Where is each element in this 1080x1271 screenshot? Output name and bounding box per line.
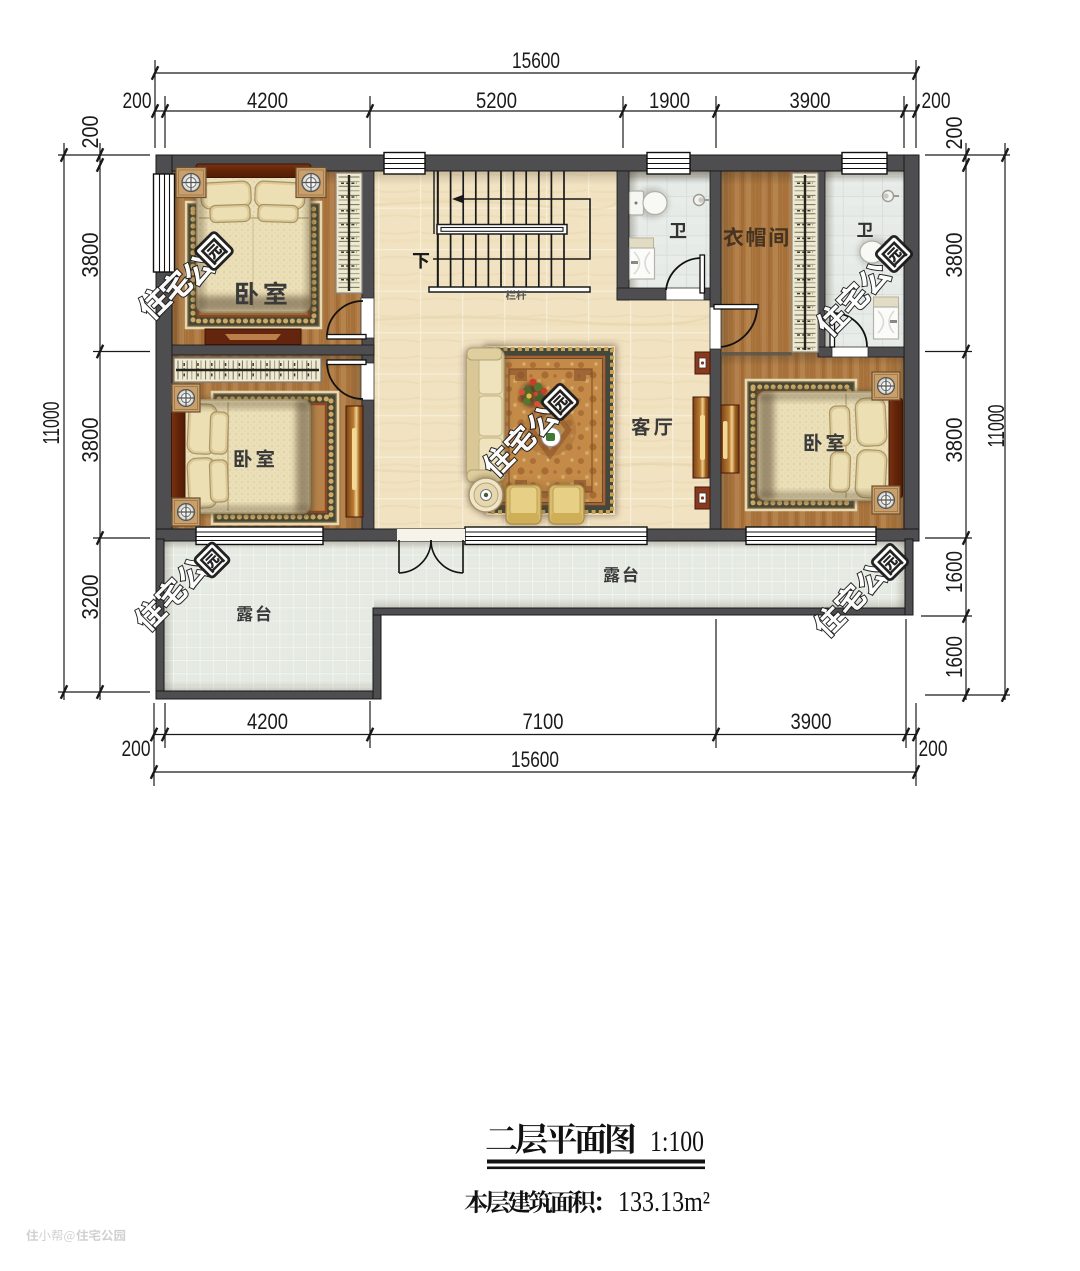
svg-text:3900: 3900: [791, 709, 832, 734]
svg-text:11000: 11000: [38, 402, 64, 445]
svg-text:200: 200: [123, 88, 152, 113]
svg-text:15600: 15600: [512, 48, 560, 73]
svg-text:200: 200: [919, 736, 948, 761]
svg-text:3800: 3800: [77, 418, 103, 463]
svg-text:11000: 11000: [983, 405, 1009, 448]
svg-text:1600: 1600: [941, 551, 967, 593]
svg-text:200: 200: [77, 116, 103, 149]
svg-text:3800: 3800: [941, 418, 967, 463]
svg-text:133.13m²: 133.13m²: [618, 1186, 710, 1218]
svg-text:200: 200: [922, 88, 951, 113]
svg-text:4200: 4200: [247, 709, 288, 734]
svg-text:5200: 5200: [476, 88, 517, 113]
svg-text:200: 200: [941, 117, 967, 150]
svg-text:15600: 15600: [511, 747, 559, 772]
svg-text:1:100: 1:100: [650, 1125, 704, 1158]
svg-text:7100: 7100: [523, 709, 564, 734]
svg-text:1600: 1600: [941, 636, 967, 678]
svg-text:3800: 3800: [77, 233, 103, 278]
svg-text:3900: 3900: [790, 88, 831, 113]
svg-text:1900: 1900: [649, 88, 690, 113]
svg-text:4200: 4200: [247, 88, 288, 113]
svg-text:3800: 3800: [941, 233, 967, 278]
svg-text:200: 200: [122, 736, 151, 761]
svg-text:3200: 3200: [77, 575, 103, 620]
